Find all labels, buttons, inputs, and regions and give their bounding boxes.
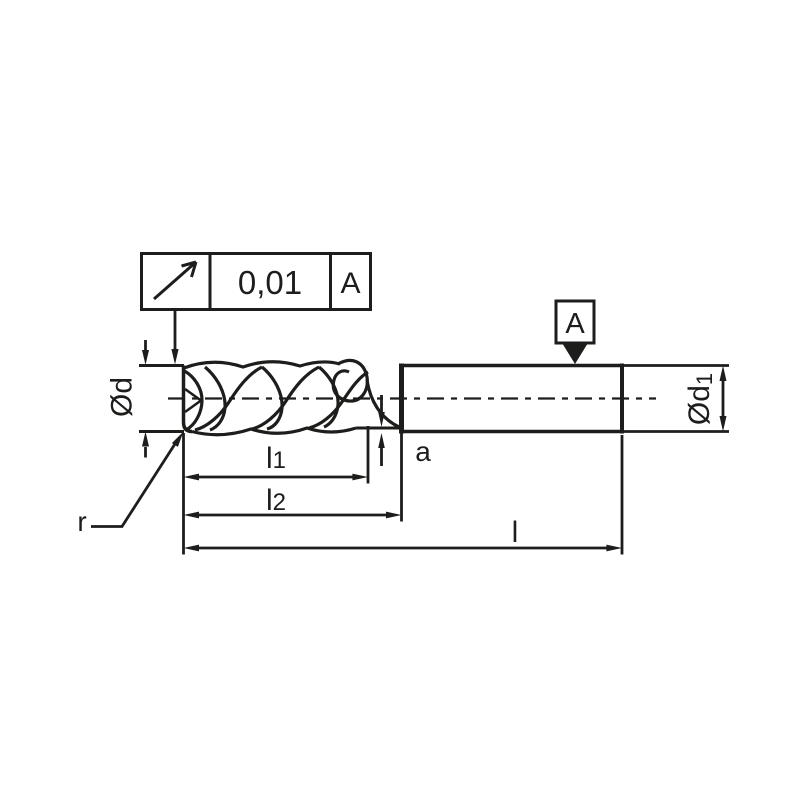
datum-flag-label: A	[565, 308, 585, 340]
label-l1: l1	[266, 442, 286, 475]
dim-arrow-icon	[142, 432, 149, 447]
tolerance-datum-ref: A	[340, 267, 360, 300]
dim-arrow-icon	[184, 512, 200, 519]
technical-drawing: 0,01 A A	[0, 0, 800, 800]
cutter-body	[139, 364, 729, 434]
label-l2: l2	[266, 484, 286, 517]
label-r: r	[77, 506, 86, 537]
label-diameter-d1-sub: 1	[692, 373, 717, 385]
label-diameter-d: Ød	[106, 377, 139, 417]
dimension-od1: Ød1	[683, 366, 727, 432]
flute-runout-loop	[333, 360, 367, 401]
dim-arrow-icon	[606, 545, 622, 552]
circular-runout-arrow-icon	[154, 262, 196, 299]
dim-arrow-icon	[720, 416, 727, 432]
drawing-canvas: 0,01 A A	[0, 0, 800, 800]
label-l1-main: l	[266, 442, 273, 475]
label-l2-main: l	[266, 484, 273, 517]
runout-arrow-shaft	[154, 262, 196, 299]
datum-triangle-icon	[563, 345, 587, 365]
dimension-r: r	[77, 432, 183, 538]
dim-arrow-icon	[184, 474, 200, 481]
dim-arrow-icon	[142, 350, 149, 365]
dim-arrow-icon	[184, 545, 200, 552]
dim-arrow-icon	[378, 412, 385, 427]
dimension-od: Ød	[106, 340, 150, 458]
label-l2-sub: 2	[273, 489, 286, 516]
label-a: a	[415, 436, 431, 467]
label-diameter-d1: Ød1	[683, 373, 717, 425]
flute-bottom-outline	[192, 428, 356, 435]
dim-arrow-icon	[378, 433, 385, 448]
radius-leader-line	[91, 440, 178, 527]
label-diameter-d1-main: Ød	[683, 385, 716, 425]
dim-arrow-icon	[386, 512, 402, 519]
label-l: l	[512, 516, 519, 549]
dim-arrow-icon	[352, 474, 368, 481]
label-l1-sub: 1	[273, 447, 286, 474]
tolerance-value: 0,01	[238, 264, 302, 301]
tip-center-edges	[185, 389, 201, 412]
tolerance-frame: 0,01 A	[142, 254, 371, 365]
datum-flag: A	[556, 301, 594, 364]
dim-arrow-icon	[720, 366, 727, 382]
tolerance-leader-arrow-icon	[171, 349, 178, 365]
